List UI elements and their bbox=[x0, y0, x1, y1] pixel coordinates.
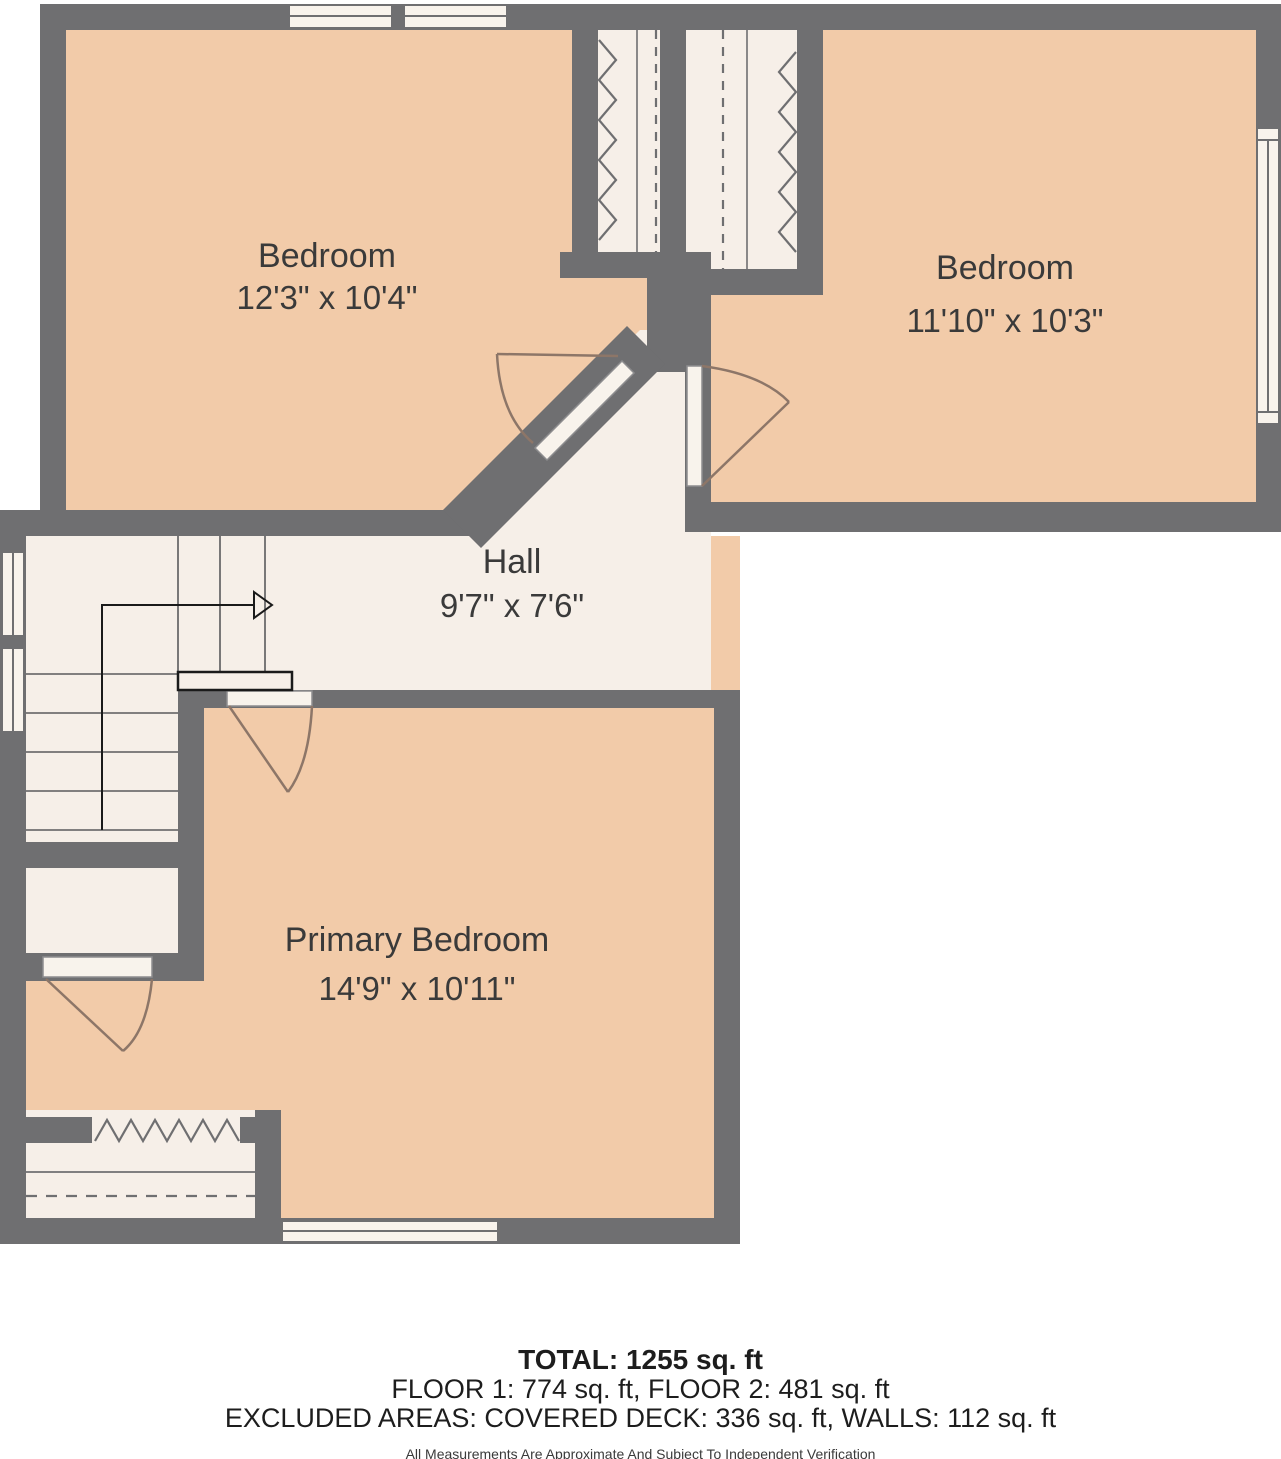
hall-primary-door-slab bbox=[227, 691, 312, 706]
floor-plan-page: Bedroom 12'3" x 10'4" Bedroom 11'10" x 1… bbox=[0, 0, 1281, 1459]
window-west-upper bbox=[2, 552, 24, 636]
excluded-areas-text: EXCLUDED AREAS: COVERED DECK: 336 sq. ft… bbox=[0, 1403, 1281, 1434]
closet-right-floor bbox=[673, 4, 810, 282]
bedroom-top-right-dims: 11'10" x 10'3" bbox=[907, 302, 1104, 340]
primary-bedroom-label: Primary Bedroom bbox=[285, 919, 550, 962]
bedroom-top-right-door-slab bbox=[687, 366, 702, 486]
hall-label: Hall bbox=[483, 541, 542, 584]
small-closet-door-slab bbox=[43, 957, 152, 977]
window-west-lower bbox=[2, 648, 24, 732]
floor-areas-text: FLOOR 1: 774 sq. ft, FLOOR 2: 481 sq. ft bbox=[0, 1374, 1281, 1405]
floor-layer bbox=[0, 4, 1281, 1244]
disclaimer-text: All Measurements Are Approximate And Sub… bbox=[0, 1446, 1281, 1459]
window-south bbox=[282, 1221, 498, 1242]
stair-landing-step bbox=[178, 672, 292, 690]
window-east bbox=[1257, 128, 1279, 424]
bedroom-top-left-label: Bedroom bbox=[258, 235, 396, 278]
bedroom-top-left-dims: 12'3" x 10'4" bbox=[237, 279, 418, 317]
hall-dims: 9'7" x 7'6" bbox=[440, 587, 584, 625]
total-area-text: TOTAL: 1255 sq. ft bbox=[0, 1344, 1281, 1376]
floor-plan-drawing bbox=[0, 0, 1281, 1459]
bedroom-top-right-label: Bedroom bbox=[936, 247, 1074, 290]
primary-bedroom-dims: 14'9" x 10'11" bbox=[319, 970, 516, 1008]
